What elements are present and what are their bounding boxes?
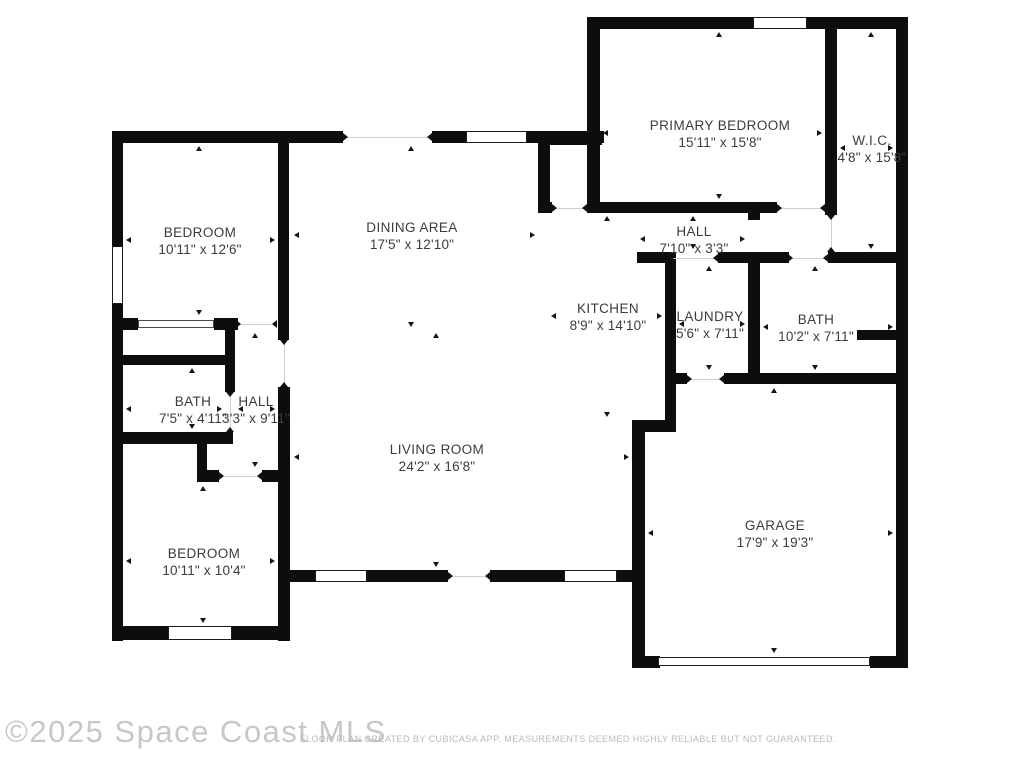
dimension-arrow <box>252 333 258 338</box>
dimension-arrow <box>294 454 299 460</box>
room-dimensions: 24'2" x 16'8" <box>390 458 484 475</box>
dimension-arrow <box>126 237 131 243</box>
door-jamb-marker <box>777 204 782 212</box>
dimension-arrow <box>200 486 206 491</box>
dimension-arrow <box>840 145 845 151</box>
door-jamb-marker <box>582 204 587 212</box>
wall-segment <box>724 373 908 384</box>
dimension-arrow <box>888 324 893 330</box>
dimension-arrow <box>433 562 439 567</box>
dimension-arrow <box>690 216 696 221</box>
room-name: LAUNDRY <box>676 308 744 325</box>
room-label: HALL7'10" x 3'3" <box>660 223 729 257</box>
door-jamb-marker <box>485 572 490 580</box>
room-name: HALL <box>660 223 729 240</box>
room-label: HALL3'3" x 9'11" <box>222 393 290 427</box>
wall-segment <box>825 27 837 215</box>
dimension-arrow <box>817 130 822 136</box>
dimension-arrow <box>126 406 131 412</box>
room-label: PRIMARY BEDROOM15'11" x 15'8" <box>650 117 791 151</box>
wall-segment <box>617 570 638 582</box>
door-jamb-marker <box>719 375 724 383</box>
room-label: W.I.C.4'8" x 15'8" <box>838 132 907 166</box>
window <box>466 131 527 143</box>
garage-door <box>658 657 870 666</box>
room-label: LAUNDRY5'6" x 7'11" <box>676 308 744 342</box>
dimension-arrow <box>252 462 258 467</box>
room-name: HALL <box>222 393 290 410</box>
door-opening <box>448 570 490 582</box>
door-jamb-marker <box>827 247 835 252</box>
wall-segment <box>587 17 600 213</box>
wall-segment <box>828 252 908 263</box>
room-dimensions: 3'3" x 9'11" <box>222 410 290 427</box>
room-name: BATH <box>778 311 854 328</box>
door-leaf <box>777 208 825 209</box>
wall-segment <box>632 420 645 668</box>
dimension-arrow <box>771 388 777 393</box>
door-jamb-marker <box>788 254 793 262</box>
dimension-arrow <box>189 368 195 373</box>
wall-segment <box>262 470 290 482</box>
door-jamb-marker <box>226 427 234 432</box>
door-jamb-marker <box>427 133 432 141</box>
dimension-arrow <box>812 266 818 271</box>
door-leaf <box>448 576 490 577</box>
door-opening <box>236 318 277 330</box>
window <box>315 570 367 582</box>
dimension-arrow <box>551 313 556 319</box>
door-leaf <box>343 137 432 138</box>
dimension-arrow <box>270 237 275 243</box>
dimension-arrow <box>270 558 275 564</box>
wall-segment <box>112 131 343 143</box>
window <box>168 626 232 640</box>
dimension-arrow <box>740 236 745 242</box>
wall-segment <box>112 318 138 330</box>
dimension-arrow <box>812 365 818 370</box>
dimension-arrow <box>624 454 629 460</box>
dimension-arrow <box>716 32 722 37</box>
door-opening <box>552 202 587 213</box>
wall-segment <box>278 131 289 340</box>
dimension-arrow <box>657 313 662 319</box>
dimension-arrow <box>200 618 206 623</box>
dimension-arrow <box>270 406 275 412</box>
room-label: BEDROOM10'11" x 10'4" <box>162 545 245 579</box>
door-jamb-marker <box>219 472 224 480</box>
wall-segment <box>748 263 760 377</box>
dimension-arrow <box>888 530 893 536</box>
room-name: BEDROOM <box>158 224 241 241</box>
dimension-arrow <box>603 130 608 136</box>
door-jamb-marker <box>257 472 262 480</box>
door-jamb-marker <box>823 254 828 262</box>
dimension-arrow <box>648 530 653 536</box>
window <box>112 246 123 304</box>
dimension-arrow <box>196 146 202 151</box>
room-dimensions: 17'9" x 19'3" <box>737 534 814 551</box>
room-label: KITCHEN8'9" x 14'10" <box>570 300 647 334</box>
watermark: ©2025 Space Coast MLS <box>5 714 387 750</box>
room-dimensions: 10'2" x 7'11" <box>778 328 854 345</box>
room-dimensions: 17'5" x 12'10" <box>366 236 457 253</box>
wall-segment <box>587 202 777 213</box>
door-leaf <box>236 324 277 325</box>
dimension-arrow <box>771 648 777 653</box>
room-dimensions: 4'8" x 15'8" <box>838 149 907 166</box>
room-label: GARAGE17'9" x 19'3" <box>737 517 814 551</box>
room-dimensions: 5'6" x 7'11" <box>676 325 744 342</box>
wall-segment <box>857 330 908 340</box>
wall-segment <box>290 570 315 582</box>
dimension-arrow <box>716 194 722 199</box>
door-opening <box>687 373 724 384</box>
dimension-arrow <box>706 365 712 370</box>
door-leaf <box>219 476 262 477</box>
door-jamb-marker <box>827 215 835 220</box>
room-dimensions: 15'11" x 15'8" <box>650 134 791 151</box>
floor-plan: BEDROOM10'11" x 12'6"DINING AREA17'5" x … <box>0 0 1024 768</box>
room-name: DINING AREA <box>366 219 457 236</box>
dimension-arrow <box>408 146 414 151</box>
wall-segment <box>665 373 687 384</box>
door-jamb-marker <box>552 204 557 212</box>
wall-segment <box>197 470 219 482</box>
dimension-arrow <box>868 32 874 37</box>
window <box>564 570 617 582</box>
door-opening <box>788 252 828 263</box>
dimension-arrow <box>189 424 195 429</box>
wall-segment <box>538 202 552 213</box>
door-jamb-marker <box>820 204 825 212</box>
wall-segment <box>367 570 448 582</box>
wall-segment <box>807 17 908 29</box>
dimension-arrow <box>294 232 299 238</box>
door-opening <box>278 340 289 387</box>
dimension-arrow <box>679 321 684 327</box>
room-name: PRIMARY BEDROOM <box>650 117 791 134</box>
dimension-arrow <box>433 333 439 338</box>
room-label: LIVING ROOM24'2" x 16'8" <box>390 441 484 475</box>
room-name: BEDROOM <box>162 545 245 562</box>
wall-segment <box>870 656 908 668</box>
room-label: BATH10'2" x 7'11" <box>778 311 854 345</box>
wall-segment <box>590 17 753 29</box>
wall-segment <box>665 252 676 432</box>
wall-segment <box>490 570 564 582</box>
door-leaf <box>669 258 718 259</box>
dimension-arrow <box>604 412 610 417</box>
dimension-arrow <box>740 321 745 327</box>
closet-doors <box>138 320 214 328</box>
dimension-arrow <box>126 558 131 564</box>
dimension-arrow <box>706 266 712 271</box>
room-name: KITCHEN <box>570 300 647 317</box>
room-label: DINING AREA17'5" x 12'10" <box>366 219 457 253</box>
door-jamb-marker <box>687 375 692 383</box>
dimension-arrow <box>888 145 893 151</box>
wall-segment <box>632 420 676 432</box>
dimension-arrow <box>604 216 610 221</box>
door-jamb-marker <box>343 133 348 141</box>
wall-segment <box>718 252 789 263</box>
wall-segment <box>232 626 290 640</box>
door-jamb-marker <box>236 320 241 328</box>
door-opening <box>343 131 432 143</box>
dimension-arrow <box>408 322 414 327</box>
wall-segment <box>112 131 123 641</box>
door-opening <box>219 470 262 482</box>
dimension-arrow <box>238 406 243 412</box>
dimension-arrow <box>868 244 874 249</box>
door-jamb-marker <box>280 382 288 387</box>
caption: FLOOR PLAN CREATED BY CUBICASA APP. MEAS… <box>300 734 836 744</box>
door-opening <box>777 202 825 213</box>
door-jamb-marker <box>448 572 453 580</box>
door-leaf <box>788 258 828 259</box>
door-leaf <box>284 340 285 387</box>
wall-segment <box>214 318 238 330</box>
dimension-arrow <box>690 244 696 249</box>
wall-segment <box>112 626 168 640</box>
wall-segment <box>896 17 908 668</box>
room-dimensions: 8'9" x 14'10" <box>570 317 647 334</box>
window <box>753 17 807 29</box>
room-name: GARAGE <box>737 517 814 534</box>
wall-segment <box>432 131 468 143</box>
wall-segment <box>632 656 660 668</box>
wall-segment <box>123 355 227 365</box>
door-opening <box>825 215 837 252</box>
dimension-arrow <box>530 232 535 238</box>
room-label: BEDROOM10'11" x 12'6" <box>158 224 241 258</box>
door-jamb-marker <box>280 340 288 345</box>
dimension-arrow <box>196 310 202 315</box>
door-jamb-marker <box>272 320 277 328</box>
wall-segment <box>112 432 233 444</box>
room-dimensions: 10'11" x 12'6" <box>158 241 241 258</box>
room-name: W.I.C. <box>838 132 907 149</box>
dimension-arrow <box>640 236 645 242</box>
room-name: LIVING ROOM <box>390 441 484 458</box>
room-dimensions: 10'11" x 10'4" <box>162 562 245 579</box>
dimension-arrow <box>763 324 768 330</box>
